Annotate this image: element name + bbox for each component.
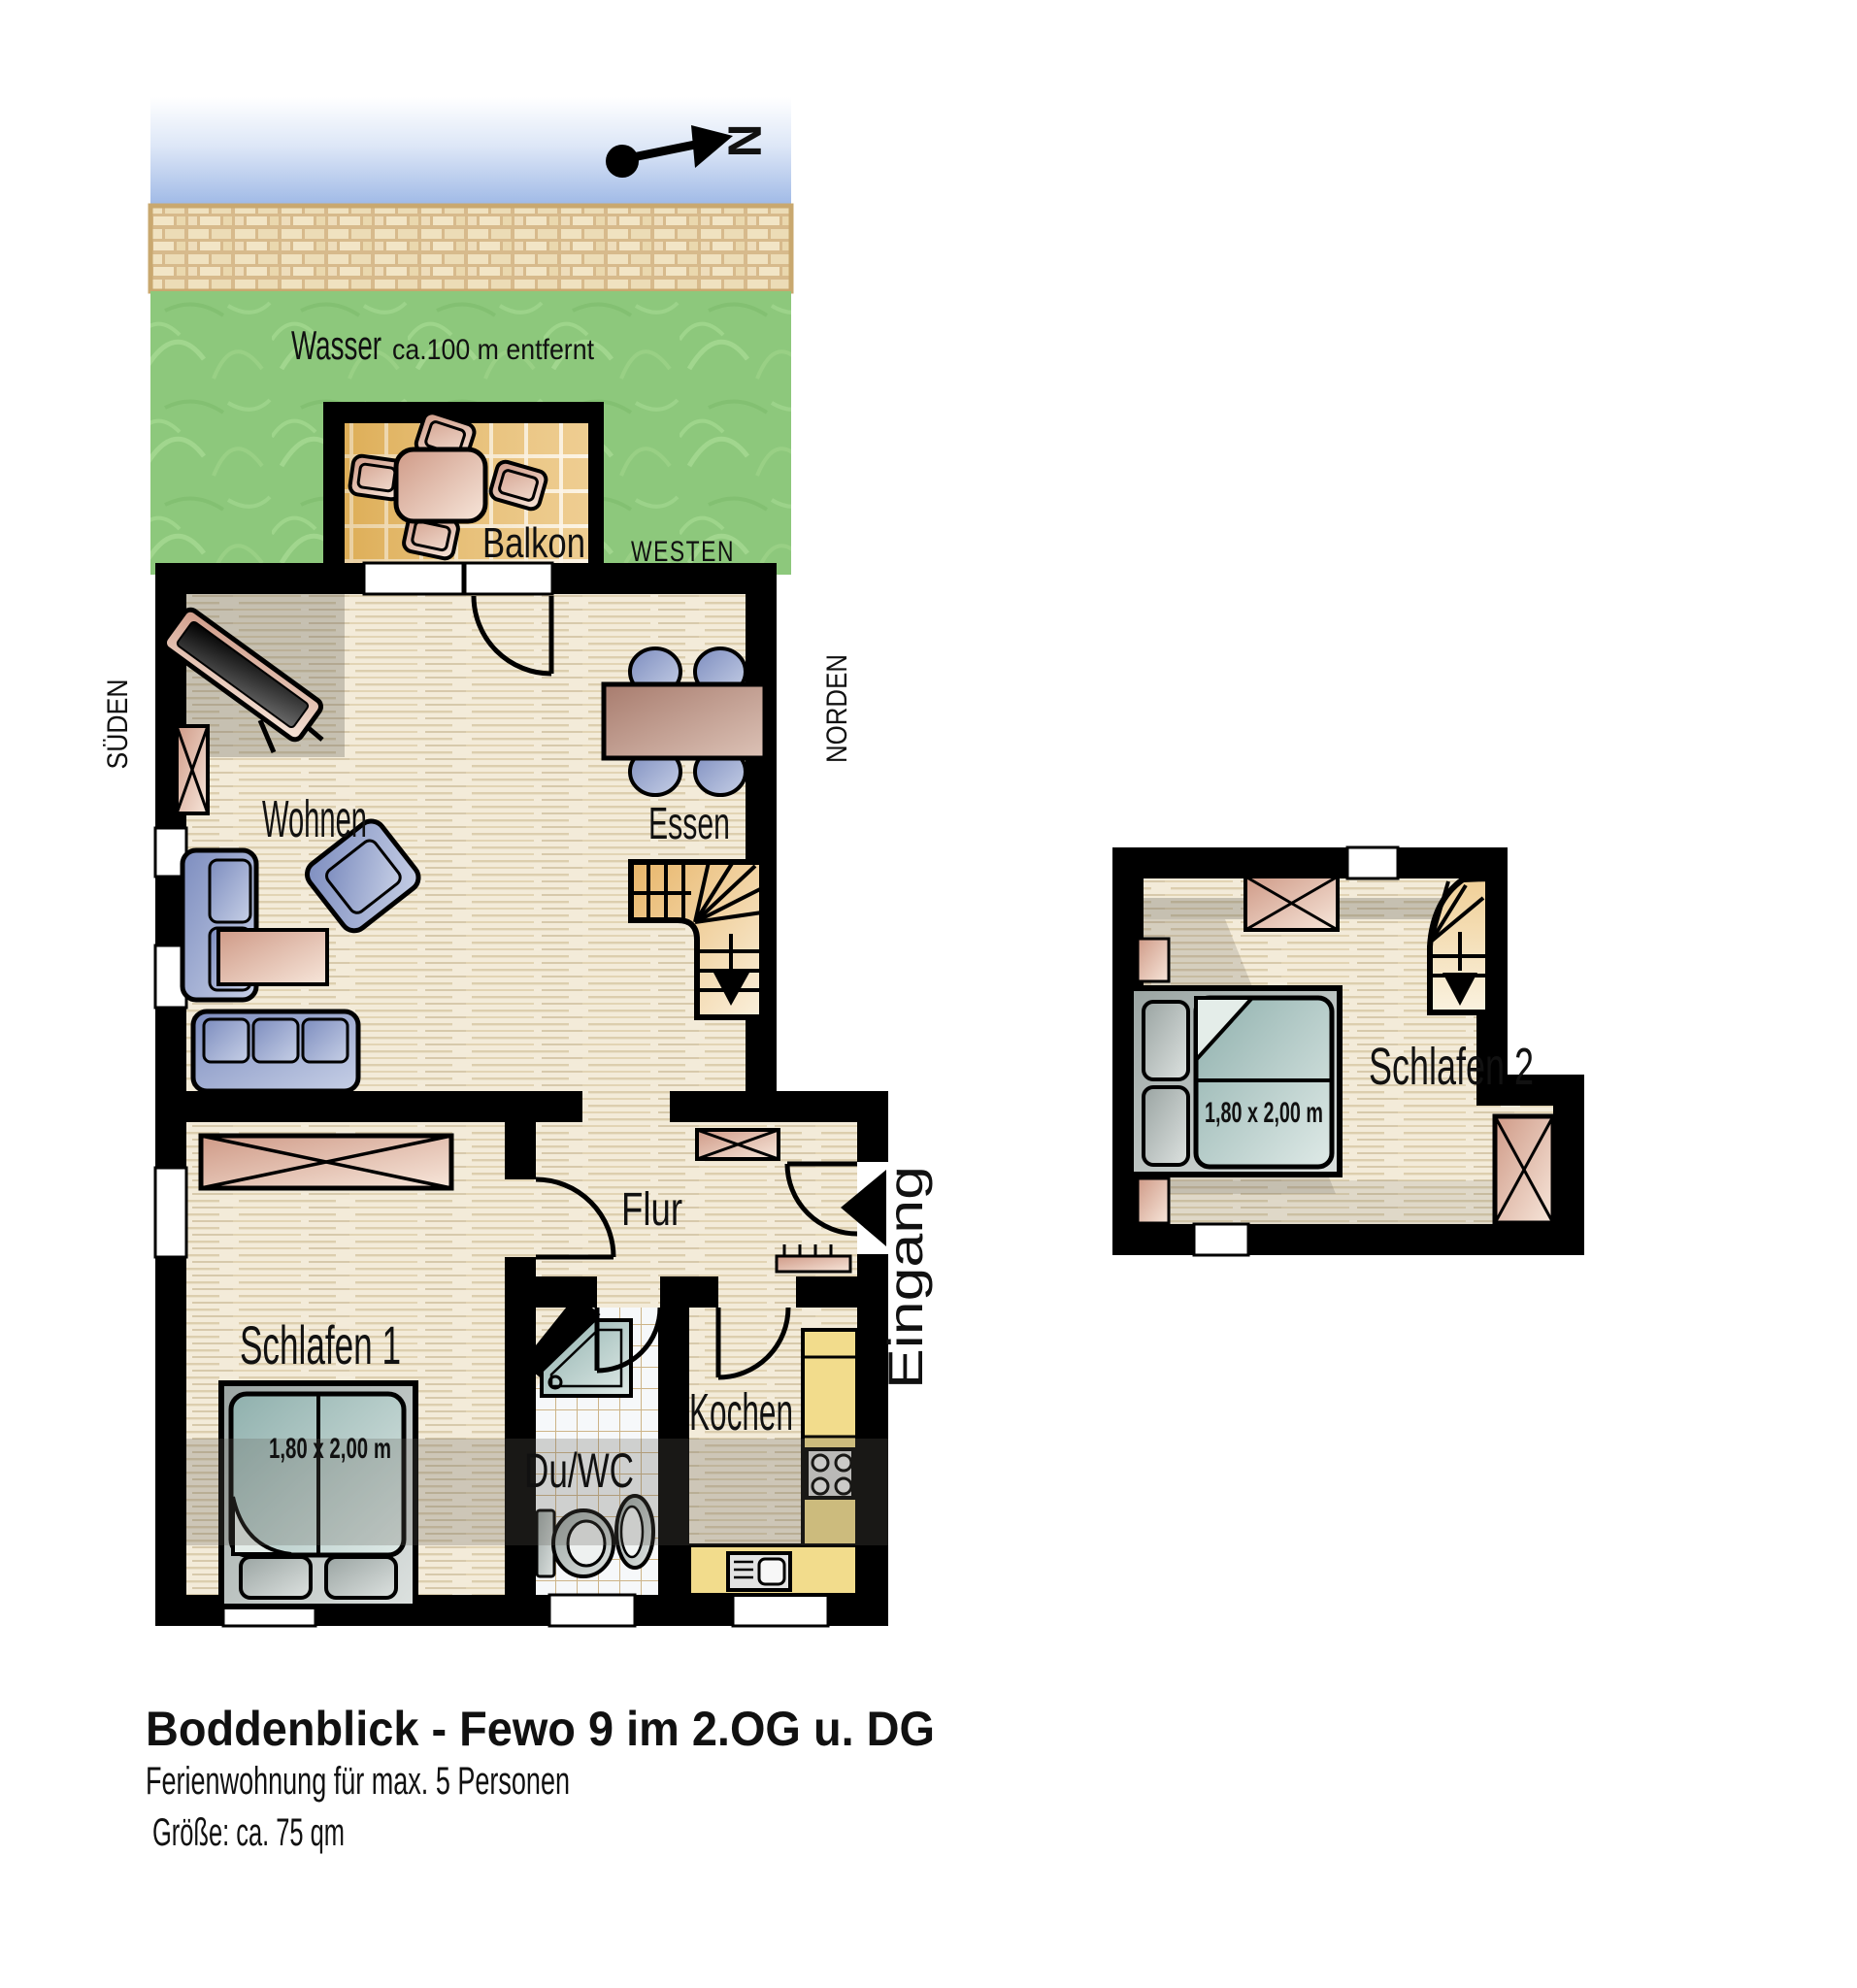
main-floor-plan: Wohnen Essen Flur Schlafen 1 Du/WC Koche… xyxy=(155,563,933,1626)
hall-wardrobe xyxy=(697,1130,779,1159)
attic-floor-plan: Schlafen 2 1,80 x 2,00 m xyxy=(1112,847,1584,1255)
pillow xyxy=(1144,1002,1188,1079)
floorplan-drawing: Wasser ca.100 m entfernt N Balko xyxy=(0,0,1857,1988)
dining-label: Essen xyxy=(648,798,730,848)
pillow xyxy=(326,1557,396,1598)
coffee-table xyxy=(218,930,327,984)
direction-north-label: NORDEN xyxy=(821,654,853,763)
living-label: Wohnen xyxy=(262,790,367,848)
bedroom2-label: Schlafen 2 xyxy=(1369,1038,1534,1096)
water-distance-label: ca.100 m entfernt xyxy=(392,334,595,366)
caption-line3: Größe: ca. 75 qm xyxy=(152,1811,345,1854)
balcony-label: Balkon xyxy=(482,519,585,567)
caption-title: Boddenblick - Fewo 9 im 2.OG u. DG xyxy=(146,1702,935,1756)
bed2 xyxy=(1131,988,1340,1175)
bedroom1-label: Schlafen 1 xyxy=(240,1314,401,1375)
sofa-three-seater xyxy=(193,1011,358,1091)
bath-doorway xyxy=(597,1276,660,1308)
bed2-size-label: 1,80 x 2,00 m xyxy=(1205,1097,1323,1129)
kitchen-label: Kochen xyxy=(689,1383,793,1441)
nightstand xyxy=(1138,939,1169,981)
caption: Boddenblick - Fewo 9 im 2.OG u. DG Ferie… xyxy=(146,1702,935,1854)
bedroom1-doorway xyxy=(505,1179,536,1257)
kitchen-sink xyxy=(728,1553,790,1590)
pillow xyxy=(241,1557,311,1598)
dining-table xyxy=(604,684,765,758)
direction-south-label: SÜDEN xyxy=(102,679,134,770)
balcony-table xyxy=(396,449,485,521)
nightstand xyxy=(1138,1178,1169,1223)
bedroom2-wardrobe-top xyxy=(1245,877,1338,930)
hall-label: Flur xyxy=(621,1184,682,1236)
caption-line2: Ferienwohnung für max. 5 Personen xyxy=(146,1760,570,1803)
passage-floor xyxy=(582,1091,670,1122)
bed1-size-label: 1,80 x 2,00 m xyxy=(269,1433,391,1465)
shelf-crossed xyxy=(177,726,208,813)
attic-south-shadow xyxy=(1144,1180,1553,1224)
entrance-label: Eingang xyxy=(879,1166,933,1389)
water-label: Wasser xyxy=(291,322,381,368)
pillow xyxy=(1144,1087,1188,1165)
floorplan-page: Wasser ca.100 m entfernt N Balko xyxy=(0,0,1857,1988)
direction-west-label: WESTEN xyxy=(631,536,735,568)
balcony: Balkon xyxy=(323,402,604,582)
bedroom2-wardrobe-right xyxy=(1495,1116,1553,1223)
beach-promenade xyxy=(150,206,791,291)
bath-label: Du/WC xyxy=(524,1443,634,1498)
kitchen-doorway xyxy=(718,1276,796,1308)
bedroom1-wardrobe xyxy=(201,1136,451,1188)
compass-north-letter: N xyxy=(718,124,770,158)
